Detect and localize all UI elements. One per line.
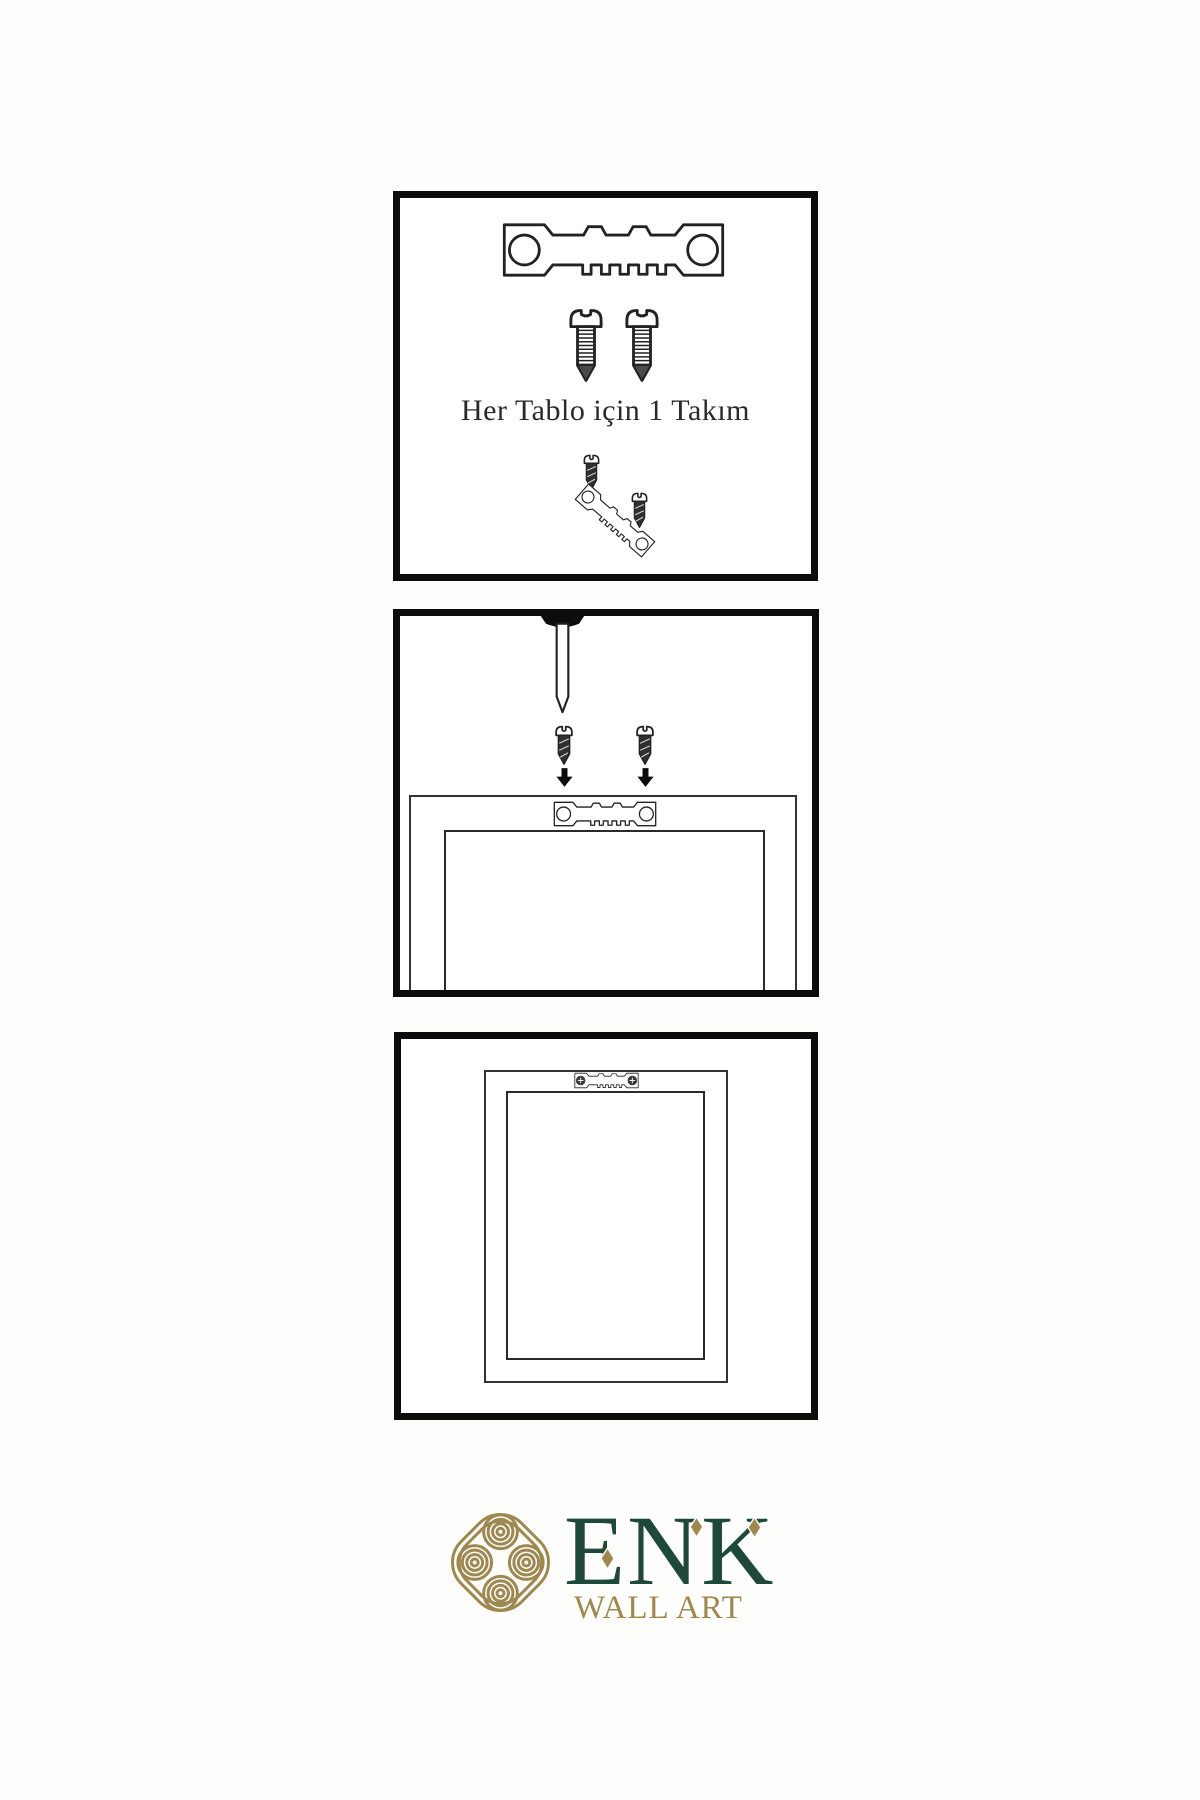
sawtooth-hanger-icon xyxy=(497,222,730,278)
frame-back-inner-outline xyxy=(506,1091,705,1360)
knot-lobe-right xyxy=(509,1546,543,1580)
knot-lobe-top xyxy=(484,1515,518,1549)
small-screw-icon xyxy=(630,491,649,529)
arrow-down-icon xyxy=(637,768,654,787)
installed-sawtooth-hanger-icon xyxy=(574,1072,639,1089)
small-screw-icon xyxy=(634,724,656,766)
step-panel-mounted-frame xyxy=(394,1032,818,1420)
gold-diamond-icon xyxy=(748,1517,761,1538)
step-panel-mounting xyxy=(393,609,819,997)
gold-diamond-icon xyxy=(600,1548,615,1569)
knot-lobe-left xyxy=(458,1546,492,1580)
knot-lobe-bottom xyxy=(484,1576,518,1610)
arrow-down-icon xyxy=(556,768,573,787)
gold-diamond-icon xyxy=(690,1517,703,1537)
step-panel-hardware-kit: Her Tablo için 1 Takım xyxy=(393,191,818,581)
frame-back-inner-outline xyxy=(444,830,765,990)
knot-icon xyxy=(440,1497,561,1628)
instruction-sheet: Her Tablo için 1 Takım xyxy=(0,0,1200,1800)
nail-icon xyxy=(539,615,586,716)
screw-icon xyxy=(569,305,603,386)
small-screw-icon xyxy=(553,724,575,766)
kit-caption: Her Tablo için 1 Takım xyxy=(400,394,811,428)
brand-subtitle: WALL ART xyxy=(574,1592,743,1625)
brand-name: ENK xyxy=(564,1501,776,1601)
sawtooth-hanger-icon xyxy=(553,801,657,827)
screw-icon xyxy=(625,305,659,386)
